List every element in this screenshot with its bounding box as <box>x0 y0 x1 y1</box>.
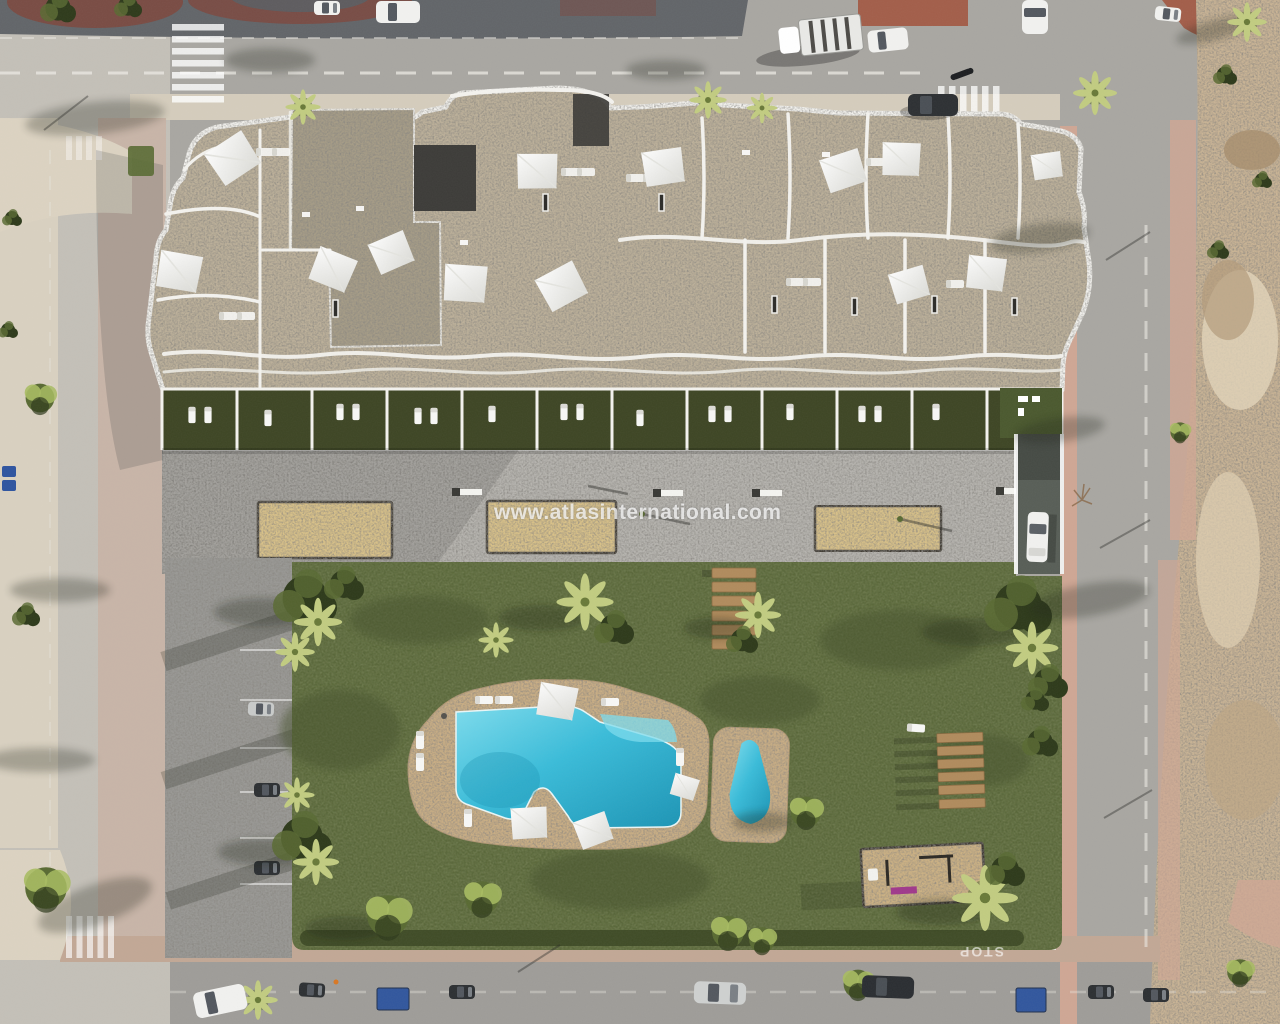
watermark: www.atlasinternational.com <box>494 501 794 525</box>
stop-road-marking: STOP <box>958 944 1004 960</box>
aerial-residential-render: www.atlasinternational.com STOP <box>0 0 1280 1024</box>
